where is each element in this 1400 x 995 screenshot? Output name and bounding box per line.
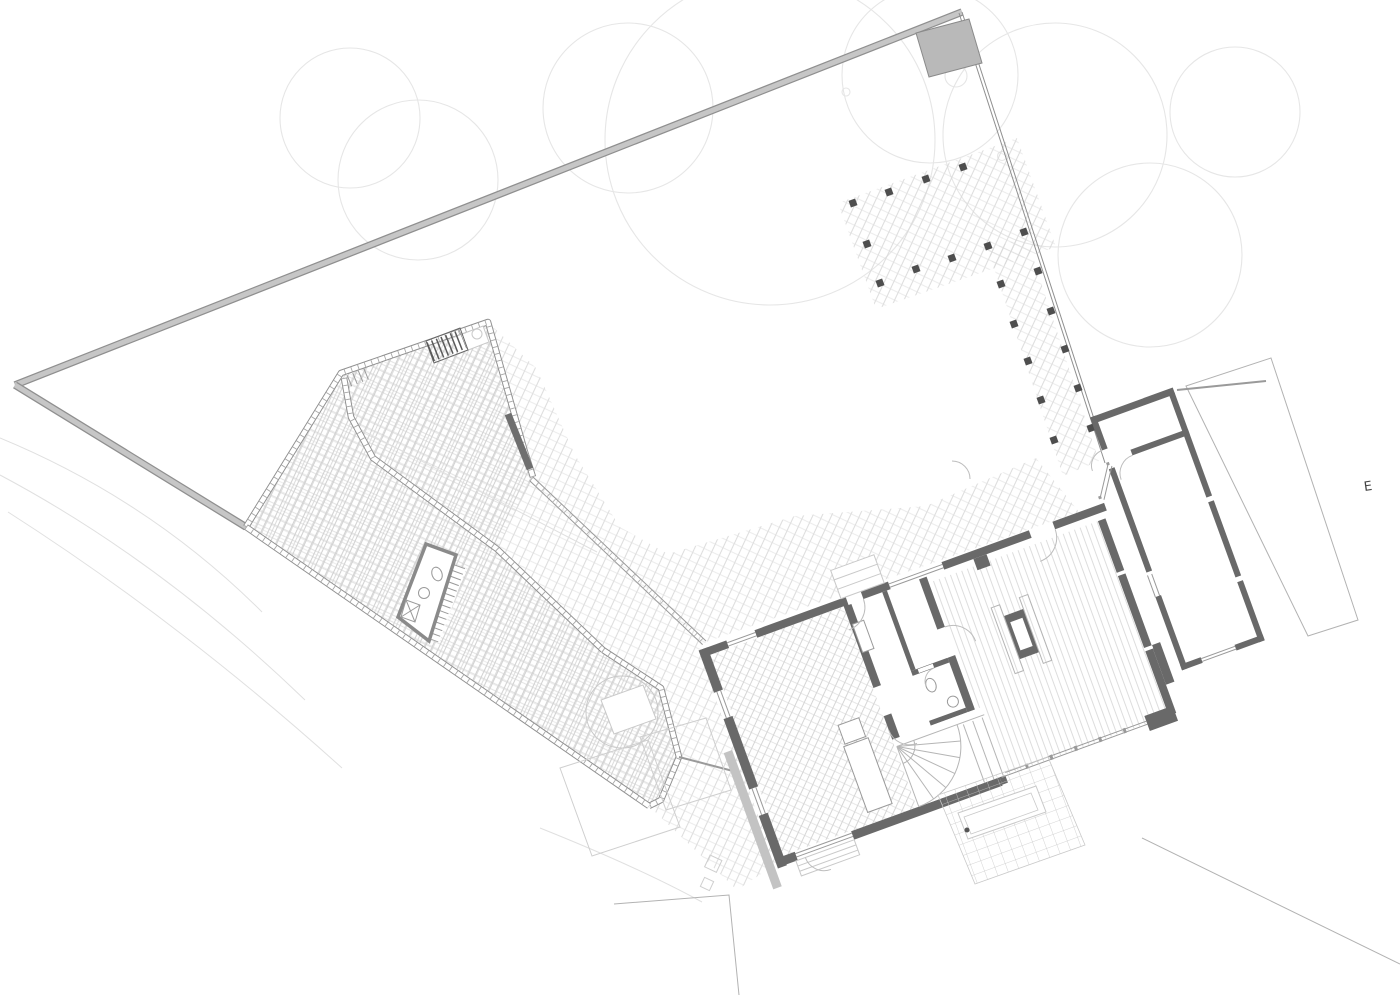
site-plan-canvas: E [0, 0, 1400, 995]
tree-canopy [338, 100, 498, 260]
contour-line [0, 438, 262, 612]
orientation-label: E [1363, 479, 1373, 495]
utility-box [700, 877, 713, 890]
tree-canopy [280, 48, 420, 188]
tree-canopies [280, 0, 1300, 347]
site-plan-drawing: E [0, 0, 1400, 995]
sink [419, 588, 430, 599]
neighbor-boundary-line [1142, 838, 1400, 964]
garden-fence [1177, 381, 1266, 390]
garden-gate-swing [952, 461, 970, 479]
tree-canopy [1170, 47, 1300, 177]
tree-canopy [1058, 163, 1242, 347]
drain-point [965, 828, 970, 833]
path-outline [614, 895, 739, 995]
contour-line [540, 828, 702, 902]
